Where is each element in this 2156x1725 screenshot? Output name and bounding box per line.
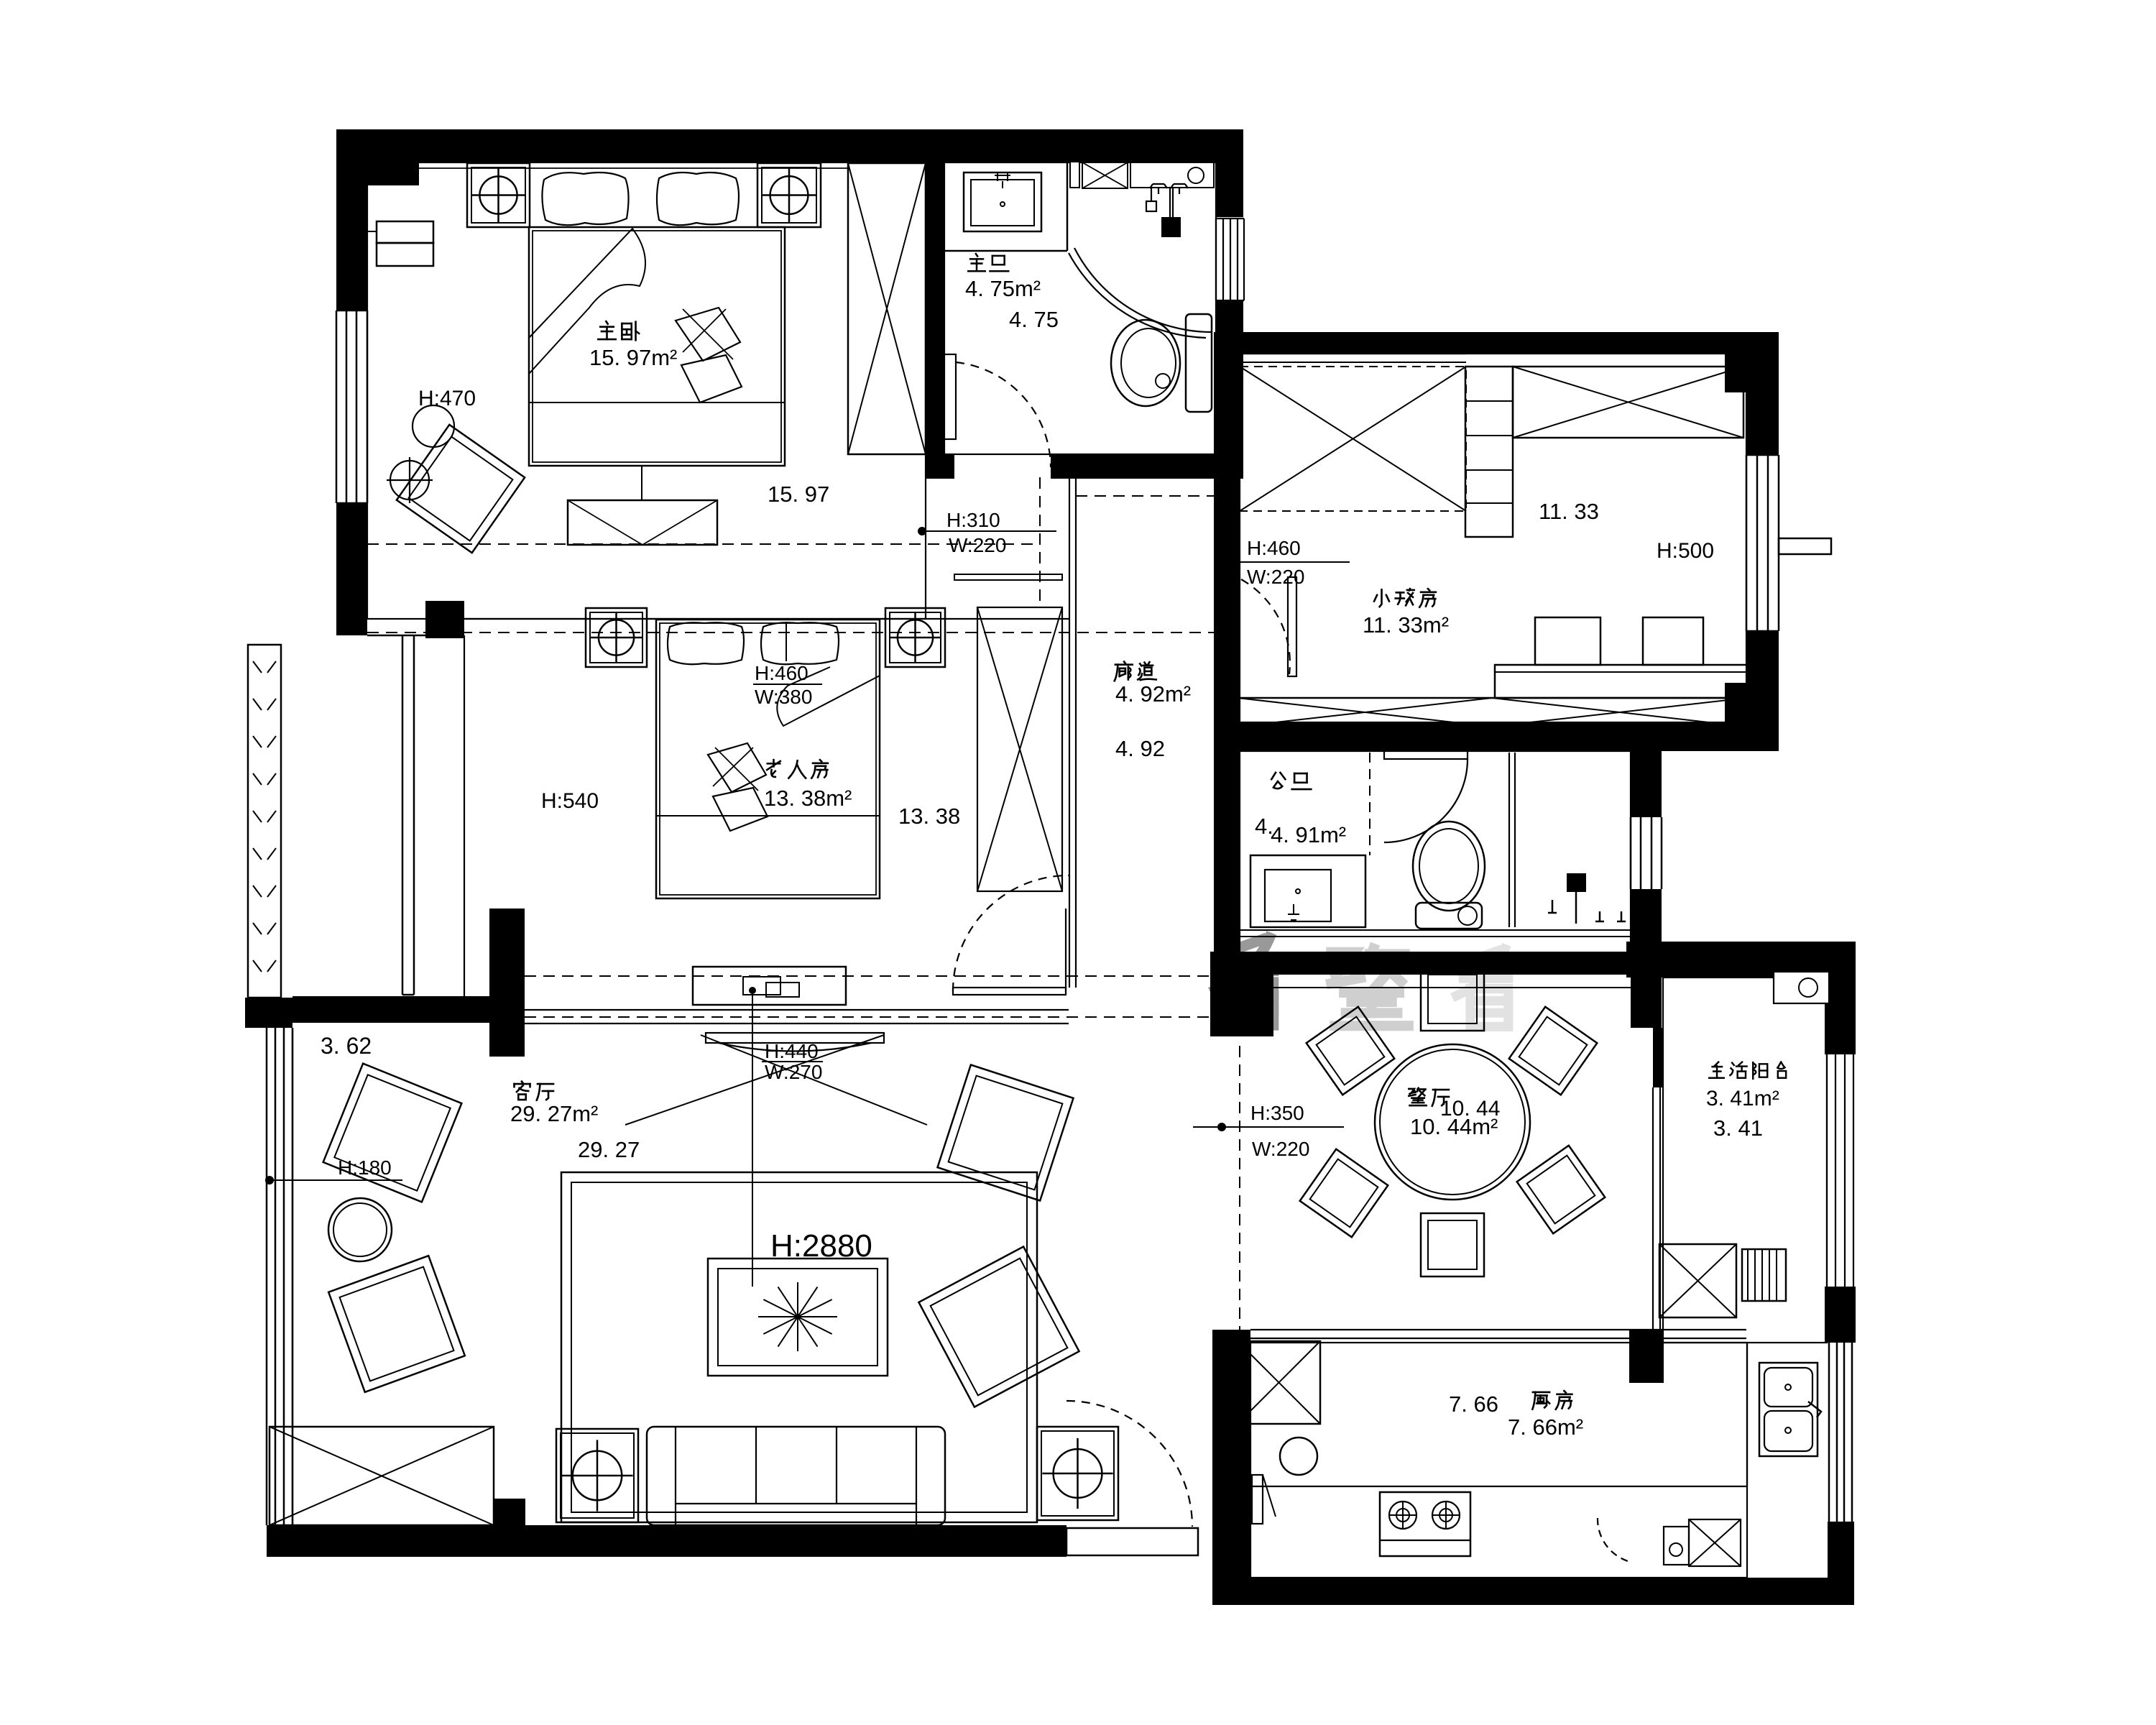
svg-text:11. 33m²: 11. 33m² <box>1363 612 1449 638</box>
svg-text:3. 62: 3. 62 <box>321 1033 372 1059</box>
svg-text:W:220: W:220 <box>1252 1138 1309 1160</box>
svg-text:29. 27: 29. 27 <box>578 1137 640 1162</box>
svg-text:H:460: H:460 <box>755 662 808 684</box>
svg-text:W:220: W:220 <box>1247 566 1304 588</box>
svg-text:29. 27m²: 29. 27m² <box>510 1101 598 1126</box>
svg-text:13. 38: 13. 38 <box>898 804 960 829</box>
svg-text:3. 41: 3. 41 <box>1713 1115 1763 1141</box>
svg-text:15. 97: 15. 97 <box>768 482 829 507</box>
svg-text:11. 33: 11. 33 <box>1539 499 1599 524</box>
svg-text:7. 66m²: 7. 66m² <box>1508 1414 1583 1440</box>
svg-text:10. 44m²: 10. 44m² <box>1410 1114 1498 1139</box>
svg-text:4. 75: 4. 75 <box>1009 307 1059 332</box>
svg-text:W:380: W:380 <box>755 686 812 708</box>
svg-text:W:270: W:270 <box>765 1061 822 1083</box>
svg-text:H:540: H:540 <box>541 789 599 813</box>
svg-text:4. 91m²: 4. 91m² <box>1271 822 1346 847</box>
svg-text:H:460: H:460 <box>1247 537 1301 559</box>
svg-text:H:440: H:440 <box>765 1040 819 1062</box>
svg-text:7. 66: 7. 66 <box>1449 1391 1498 1417</box>
svg-text:H:500: H:500 <box>1657 539 1714 563</box>
svg-text:3. 41m²: 3. 41m² <box>1706 1087 1779 1110</box>
svg-text:H:350: H:350 <box>1250 1102 1304 1124</box>
svg-text:15. 97m²: 15. 97m² <box>589 345 677 370</box>
svg-text:H:310: H:310 <box>946 509 1000 531</box>
svg-text:H:470: H:470 <box>418 387 476 410</box>
svg-text:4. 92m²: 4. 92m² <box>1115 681 1191 707</box>
svg-text:W:220: W:220 <box>949 534 1006 556</box>
svg-text:4. 75m²: 4. 75m² <box>965 276 1041 301</box>
svg-text:H:180: H:180 <box>338 1156 392 1179</box>
svg-text:H:2880: H:2880 <box>770 1228 872 1264</box>
svg-text:4. 92: 4. 92 <box>1115 736 1165 761</box>
svg-text:13. 38m²: 13. 38m² <box>764 786 852 811</box>
